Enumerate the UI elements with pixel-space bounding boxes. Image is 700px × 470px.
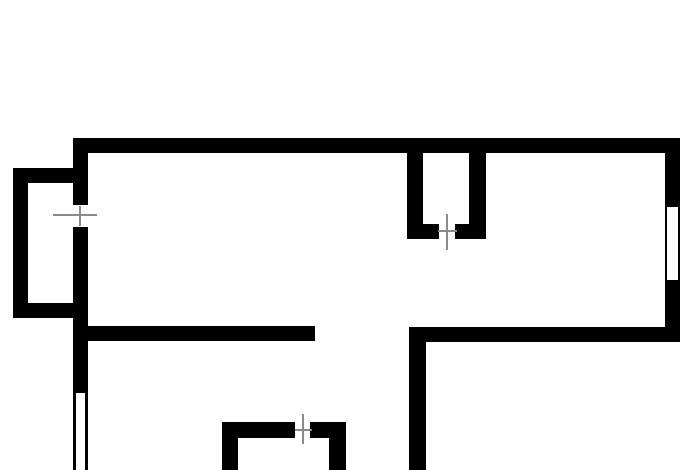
mid-right-partition-wall — [409, 327, 680, 342]
lower-vertical-wall — [409, 327, 426, 470]
left-wall-lower — [73, 227, 88, 393]
closet-left-wall — [407, 153, 423, 239]
balcony-left-wall — [13, 168, 28, 318]
left-wall-upper — [73, 138, 88, 205]
closet-door-marker-horizontal — [438, 230, 457, 232]
balcony-door-marker-horizontal — [53, 214, 97, 216]
closet-bottom-left-stub — [423, 224, 439, 239]
floor-plan-canvas — [0, 0, 700, 470]
balcony-bottom-wall — [13, 303, 73, 318]
closet-door-marker-vertical — [446, 214, 448, 250]
small-room-door-marker-horizontal — [295, 429, 312, 431]
closet-bottom-right-stub — [455, 224, 469, 239]
small-room-right-wall — [329, 438, 346, 470]
top-wall — [73, 138, 680, 153]
balcony-door-marker-vertical — [79, 206, 81, 226]
mid-left-partition-wall — [73, 326, 315, 341]
closet-right-wall — [469, 153, 486, 239]
right-wall-window — [667, 207, 678, 280]
left-window-right-edge — [85, 393, 88, 470]
small-room-top-wall-right — [310, 422, 346, 438]
small-room-left-wall — [222, 422, 238, 470]
left-window-left-edge — [73, 393, 76, 470]
